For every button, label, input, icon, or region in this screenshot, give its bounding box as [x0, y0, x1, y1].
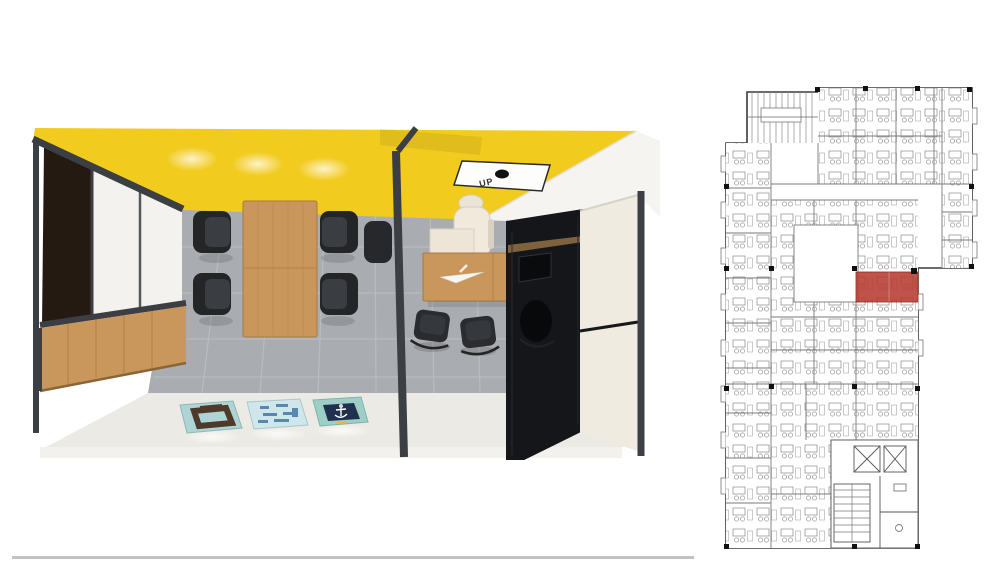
ceiling-light-glow — [232, 152, 284, 176]
dark-chair-silhouette — [520, 300, 552, 342]
highlighted-room — [856, 272, 918, 302]
ceiling-light-glow — [166, 147, 218, 171]
ceiling-sign: UP — [454, 161, 550, 191]
dark-doorway — [42, 147, 92, 325]
open-room — [794, 225, 858, 302]
poster-ornate-frame — [180, 401, 242, 433]
ceiling-light-glow — [298, 157, 350, 181]
footer-divider-line — [12, 556, 694, 559]
meeting-table — [243, 201, 317, 337]
poster-typography — [247, 399, 308, 429]
return-table — [430, 229, 474, 254]
meeting-chair-partial — [364, 221, 392, 263]
interior-render-figure: UP — [30, 125, 660, 460]
wardrobe — [580, 191, 641, 456]
monitor — [519, 253, 551, 282]
floor-plan-canvas — [706, 84, 996, 554]
poster-anchor — [313, 397, 368, 426]
glossy-media-wall — [506, 209, 583, 460]
sign-logo-dot — [495, 170, 509, 179]
office-desk — [423, 253, 513, 307]
corridor — [772, 185, 941, 199]
floor-plan-figure — [706, 84, 996, 554]
interior-render-canvas: UP — [30, 125, 660, 460]
service-core — [831, 440, 918, 548]
